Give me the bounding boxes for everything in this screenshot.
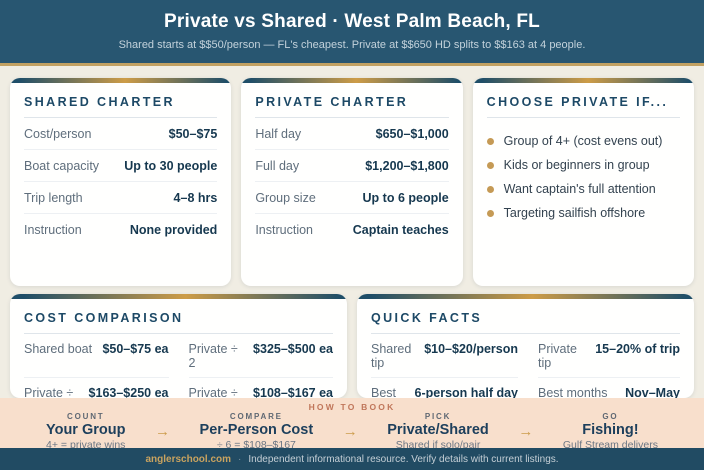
fact-pair: Private tip 15–20% of trip: [538, 334, 680, 378]
fact-pair: Shared tip $10–$20/person: [371, 334, 518, 378]
booking-step: COUNT Your Group 4+ = private wins: [46, 412, 125, 451]
spec-value: Up to 6 people: [363, 191, 449, 205]
quick-facts-grid: Shared tip $10–$20/person Private tip 15…: [371, 334, 680, 398]
booking-steps: COUNT Your Group 4+ = private wins → COM…: [12, 412, 692, 451]
fact-value: $325–$500 ea: [253, 342, 333, 356]
cost-comparison-grid: Shared boat $50–$75 ea Private ÷ 2 $325–…: [24, 334, 333, 398]
fact-label: Shared tip: [371, 342, 418, 370]
fact-value: $10–$20/person: [424, 342, 518, 356]
bullet-dot-icon: [487, 210, 494, 217]
arrow-right-icon: →: [151, 423, 174, 440]
comparison-cards-row: SHARED CHARTER Cost/person $50–$75 Boat …: [10, 78, 694, 286]
spec-value: $1,200–$1,800: [365, 159, 448, 173]
step-title: Private/Shared: [387, 422, 489, 438]
list-item: Want captain's full attention: [487, 177, 680, 201]
fact-label: Private ÷ 4: [24, 386, 83, 398]
spec-row: Trip length 4–8 hrs: [24, 182, 217, 214]
step-title: Fishing!: [563, 422, 658, 438]
fact-value: $50–$75 ea: [102, 342, 168, 356]
footer-disclaimer: Independent informational resource. Veri…: [248, 454, 558, 465]
arrow-right-icon: →: [339, 423, 362, 440]
bullet-dot-icon: [487, 186, 494, 193]
spec-label: Cost/person: [24, 127, 91, 141]
spec-label: Instruction: [255, 223, 313, 237]
step-kicker: GO: [563, 412, 658, 421]
spec-value: 4–8 hrs: [174, 191, 218, 205]
spec-row: Instruction Captain teaches: [255, 214, 448, 245]
private-charter-specs: Half day $650–$1,000 Full day $1,200–$1,…: [255, 118, 448, 245]
bullet-text: Targeting sailfish offshore: [504, 206, 646, 220]
list-item: Group of 4+ (cost evens out): [487, 129, 680, 153]
fact-pair: Shared boat $50–$75 ea: [24, 334, 169, 378]
fact-value: $163–$250 ea: [89, 386, 169, 398]
booking-step: COMPARE Per-Person Cost ÷ 6 = $108–$167: [200, 412, 314, 451]
quick-facts-title: QUICK FACTS: [371, 308, 680, 334]
private-charter-card: PRIVATE CHARTER Half day $650–$1,000 Ful…: [241, 78, 462, 286]
step-kicker: PICK: [387, 412, 489, 421]
bullet-dot-icon: [487, 138, 494, 145]
list-item: Kids or beginners in group: [487, 153, 680, 177]
spec-label: Group size: [255, 191, 315, 205]
bullet-dot-icon: [487, 162, 494, 169]
fact-label: Private ÷ 2: [189, 342, 248, 370]
step-title: Your Group: [46, 422, 125, 438]
bullet-text: Want captain's full attention: [504, 182, 656, 196]
booking-step: GO Fishing! Gulf Stream delivers: [563, 412, 658, 451]
spec-value: Up to 30 people: [124, 159, 217, 173]
how-to-book-section: HOW TO BOOK COUNT Your Group 4+ = privat…: [0, 398, 704, 448]
spec-row: Boat capacity Up to 30 people: [24, 150, 217, 182]
page-header: Private vs Shared · West Palm Beach, FL …: [0, 0, 704, 63]
spec-label: Full day: [255, 159, 299, 173]
fact-pair: Best private 6-person half day: [371, 378, 518, 398]
fact-value: 6-person half day: [415, 386, 519, 398]
fact-pair: Private ÷ 6 $108–$167 ea: [189, 378, 334, 398]
list-item: Targeting sailfish offshore: [487, 201, 680, 225]
private-charter-title: PRIVATE CHARTER: [255, 92, 448, 118]
fact-label: Best months: [538, 386, 607, 398]
booking-step: PICK Private/Shared Shared if solo/pair: [387, 412, 489, 451]
spec-value: $650–$1,000: [376, 127, 449, 141]
shared-charter-specs: Cost/person $50–$75 Boat capacity Up to …: [24, 118, 217, 245]
fact-label: Private ÷ 6: [189, 386, 248, 398]
page-title: Private vs Shared · West Palm Beach, FL: [10, 11, 694, 33]
footer-brand-link[interactable]: anglerschool.com: [145, 454, 231, 465]
fact-label: Shared boat: [24, 342, 92, 356]
main-content: SHARED CHARTER Cost/person $50–$75 Boat …: [0, 66, 704, 398]
quick-facts-card: QUICK FACTS Shared tip $10–$20/person Pr…: [357, 294, 694, 398]
choose-private-card: CHOOSE PRIVATE IF... Group of 4+ (cost e…: [473, 78, 694, 286]
fact-value: $108–$167 ea: [253, 386, 333, 398]
spec-label: Trip length: [24, 191, 83, 205]
how-to-book-label: HOW TO BOOK: [12, 402, 692, 412]
cost-comparison-title: COST COMPARISON: [24, 308, 333, 334]
spec-row: Full day $1,200–$1,800: [255, 150, 448, 182]
fact-pair: Private ÷ 2 $325–$500 ea: [189, 334, 334, 378]
spec-row: Instruction None provided: [24, 214, 217, 245]
step-kicker: COUNT: [46, 412, 125, 421]
fact-value: Nov–May: [625, 386, 680, 398]
bullet-text: Kids or beginners in group: [504, 158, 650, 172]
facts-cards-row: COST COMPARISON Shared boat $50–$75 ea P…: [10, 294, 694, 398]
page-subtitle: Shared starts at $$50/person — FL's chea…: [10, 39, 694, 51]
fact-pair: Best months Nov–May: [538, 378, 680, 398]
shared-charter-title: SHARED CHARTER: [24, 92, 217, 118]
arrow-right-icon: →: [514, 423, 537, 440]
choose-private-list: Group of 4+ (cost evens out) Kids or beg…: [487, 118, 680, 225]
bullet-text: Group of 4+ (cost evens out): [504, 134, 663, 148]
fact-pair: Private ÷ 4 $163–$250 ea: [24, 378, 169, 398]
spec-label: Half day: [255, 127, 301, 141]
spec-row: Group size Up to 6 people: [255, 182, 448, 214]
fact-label: Best private: [371, 386, 409, 398]
shared-charter-card: SHARED CHARTER Cost/person $50–$75 Boat …: [10, 78, 231, 286]
step-kicker: COMPARE: [200, 412, 314, 421]
page-footer: anglerschool.com · Independent informati…: [0, 448, 704, 470]
cost-comparison-card: COST COMPARISON Shared boat $50–$75 ea P…: [10, 294, 347, 398]
spec-value: $50–$75: [169, 127, 218, 141]
step-title: Per-Person Cost: [200, 422, 314, 438]
fact-value: 15–20% of trip: [595, 342, 680, 356]
spec-row: Half day $650–$1,000: [255, 118, 448, 150]
spec-value: Captain teaches: [353, 223, 449, 237]
choose-private-title: CHOOSE PRIVATE IF...: [487, 92, 680, 118]
spec-value: None provided: [130, 223, 218, 237]
fact-label: Private tip: [538, 342, 589, 370]
spec-label: Instruction: [24, 223, 82, 237]
spec-row: Cost/person $50–$75: [24, 118, 217, 150]
footer-separator: ·: [238, 454, 241, 465]
spec-label: Boat capacity: [24, 159, 99, 173]
